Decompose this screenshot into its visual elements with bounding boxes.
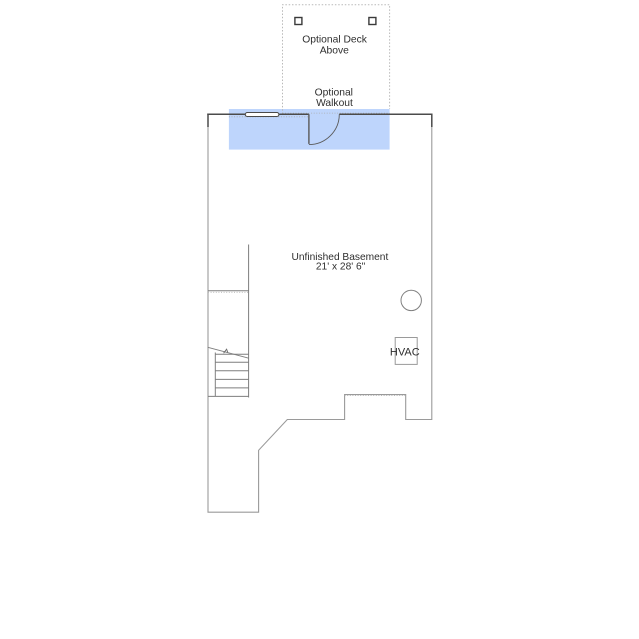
svg-text:Walkout: Walkout: [316, 98, 353, 109]
svg-text:21' x 28' 6": 21' x 28' 6": [316, 262, 366, 273]
svg-text:Optional Deck: Optional Deck: [302, 34, 368, 45]
svg-text:Optional: Optional: [315, 88, 353, 99]
svg-text:Above: Above: [320, 46, 349, 57]
svg-text:HVAC: HVAC: [390, 347, 420, 359]
